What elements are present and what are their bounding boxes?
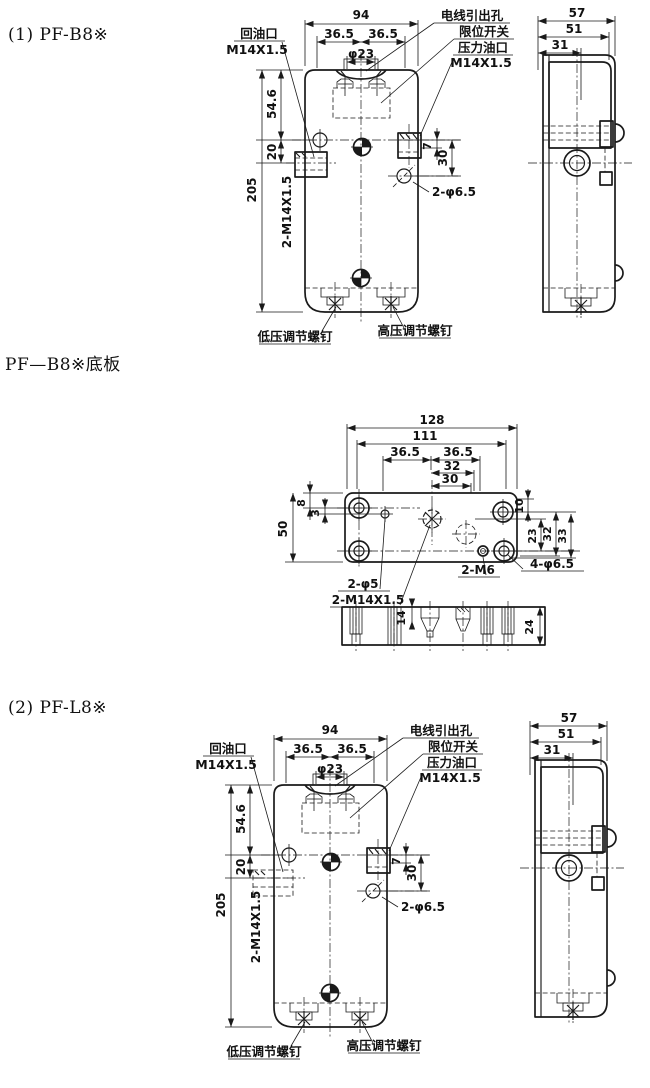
dim-36-5-left: 36.5	[390, 445, 420, 459]
dim-7: 7	[421, 142, 434, 150]
label-wire-outlet: 电线引出孔	[410, 723, 473, 738]
dim-30: 30	[436, 150, 450, 167]
dim-36-5-left: 36.5	[324, 27, 354, 41]
dim-33: 33	[556, 528, 569, 543]
label-pressure-thread: M14X1.5	[419, 770, 481, 785]
label-wire-outlet: 电线引出孔	[441, 8, 504, 23]
dim-31: 31	[544, 743, 561, 757]
label-2-m14: 2-M14X1.5	[332, 593, 404, 607]
label-2-m6: 2-M6	[461, 563, 495, 577]
label-2-m14: 2-M14X1.5	[280, 176, 294, 248]
dim-23: 23	[526, 528, 539, 543]
label-pressure-port: 压力油口	[427, 755, 477, 770]
dim-phi23: φ23	[348, 47, 374, 61]
label-pressure-port: 压力油口	[458, 40, 508, 55]
dim-8: 8	[295, 499, 308, 507]
label-limit-switch: 限位开关	[428, 739, 479, 754]
dim-205: 205	[214, 892, 228, 917]
label-4-phi6-5: 4-φ6.5	[530, 557, 574, 571]
dim-36-5-left: 36.5	[293, 742, 323, 756]
label-high-pressure-screw: 高压调节螺钉	[346, 1038, 422, 1053]
dim-51: 51	[566, 22, 583, 36]
label-return-port: 回油口	[209, 741, 247, 756]
dim-32: 32	[444, 459, 461, 473]
fig2-title: PF—B8※底板	[5, 355, 121, 375]
dim-54-6: 54.6	[265, 89, 279, 119]
fig3-title: (2) PF-L8※	[8, 698, 107, 718]
dim-3: 3	[309, 509, 322, 517]
dim-36-5-right: 36.5	[337, 742, 367, 756]
drawing-page: (1) PF-B8※ 94 36.5 36.5 φ23 54.6 20 205 …	[0, 0, 650, 1088]
dim-phi23: φ23	[317, 762, 343, 776]
label-2-m14: 2-M14X1.5	[249, 891, 263, 963]
fig1-title: (1) PF-B8※	[8, 25, 108, 45]
dim-31: 31	[552, 38, 569, 52]
label-return-thread: M14X1.5	[195, 757, 257, 772]
label-pressure-thread: M14X1.5	[450, 55, 512, 70]
label-low-pressure-screw: 低压调节螺钉	[256, 329, 333, 344]
dim-94: 94	[322, 723, 339, 737]
label-2-phi6-5: 2-φ6.5	[401, 900, 445, 914]
label-2-phi5: 2-φ5	[347, 577, 378, 591]
dim-57: 57	[561, 711, 578, 725]
label-low-pressure-screw: 低压调节螺钉	[225, 1044, 302, 1059]
dim-94: 94	[353, 8, 370, 22]
label-return-thread: M14X1.5	[226, 42, 288, 57]
label-high-pressure-screw: 高压调节螺钉	[377, 323, 453, 338]
dim-7: 7	[390, 857, 403, 865]
dim-36-5-right: 36.5	[368, 27, 398, 41]
dim-20: 20	[265, 144, 279, 161]
label-2-phi6-5: 2-φ6.5	[432, 185, 476, 199]
dim-54-6: 54.6	[234, 804, 248, 834]
dim-50: 50	[276, 521, 290, 538]
dim-30: 30	[405, 865, 419, 882]
dim-14: 14	[395, 610, 408, 626]
dim-32-right: 32	[541, 526, 554, 541]
label-limit-switch: 限位开关	[459, 24, 510, 39]
dim-36-5-right: 36.5	[443, 445, 473, 459]
label-return-port: 回油口	[240, 26, 278, 41]
dim-111: 111	[412, 429, 437, 443]
dim-24: 24	[523, 619, 536, 635]
engineering-drawing: (1) PF-B8※ 94 36.5 36.5 φ23 54.6 20 205 …	[0, 0, 650, 1088]
dim-205: 205	[245, 177, 259, 202]
dim-57: 57	[569, 6, 586, 20]
dim-51: 51	[558, 727, 575, 741]
dim-30: 30	[442, 472, 459, 486]
dim-10: 10	[513, 498, 526, 514]
dim-128: 128	[419, 413, 444, 427]
dim-20: 20	[234, 859, 248, 876]
